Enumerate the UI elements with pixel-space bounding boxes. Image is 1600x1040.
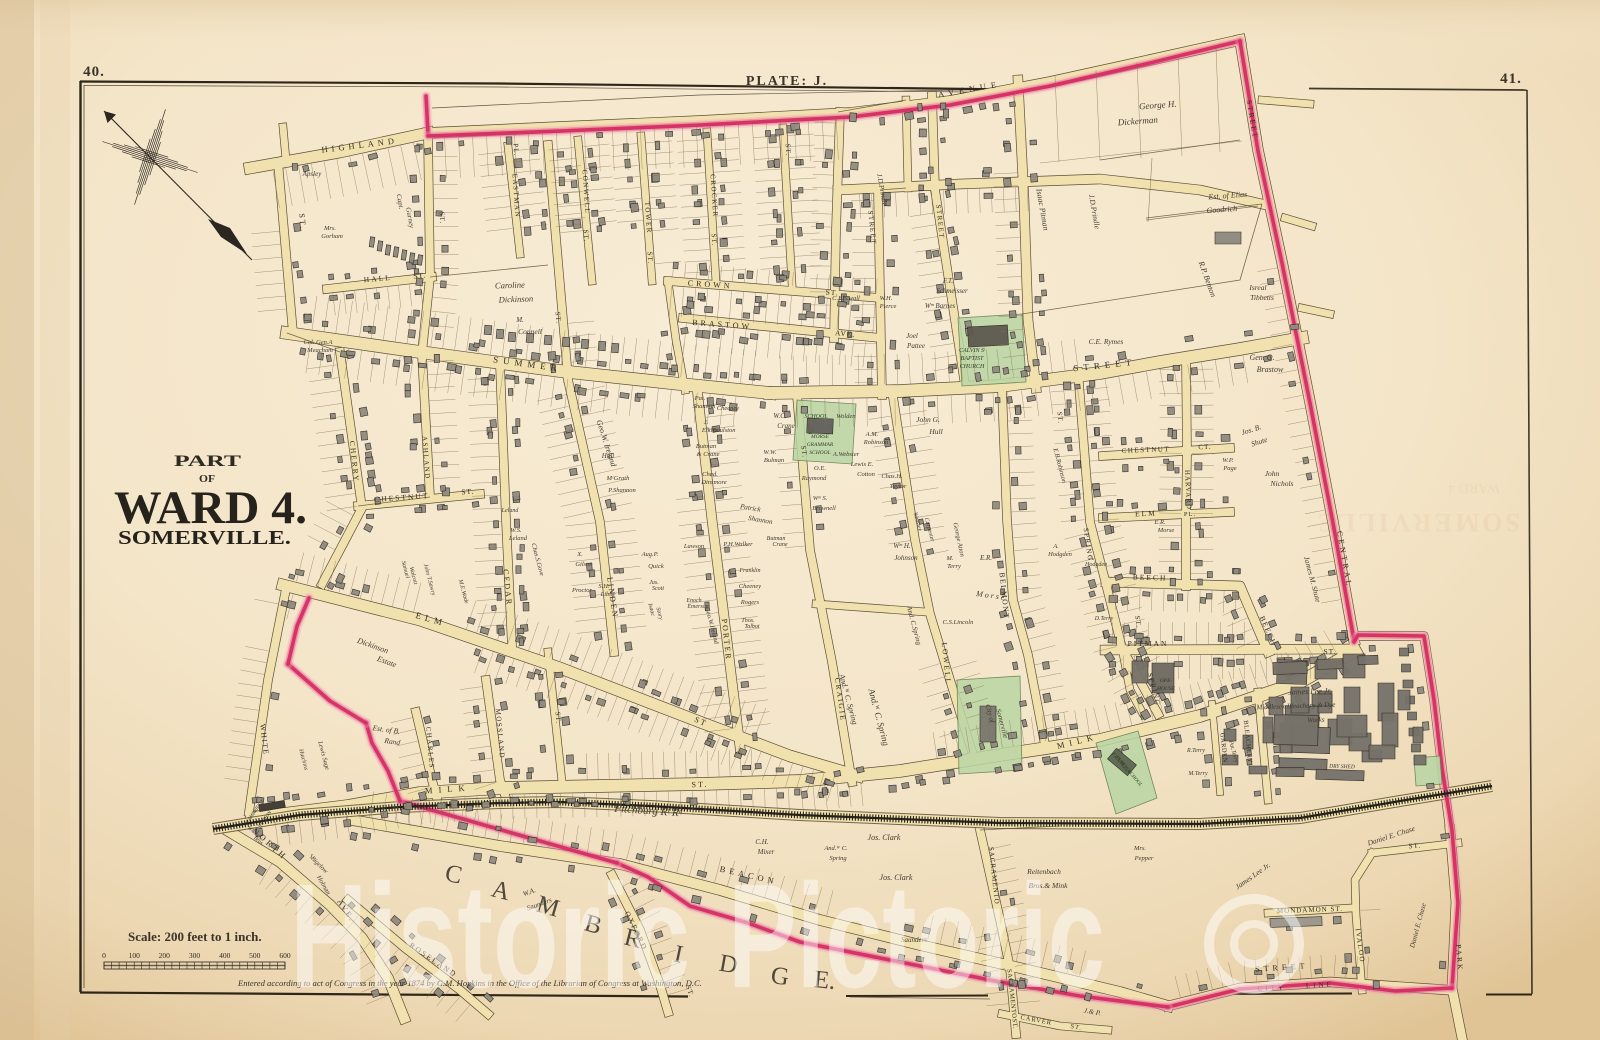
svg-text:PITMAN: PITMAN — [1128, 639, 1169, 648]
svg-text:PART: PART — [174, 453, 242, 470]
svg-text:41.: 41. — [1500, 71, 1522, 87]
svg-text:SCHOOL: SCHOOL — [804, 414, 828, 420]
svg-text:Pepper: Pepper — [1134, 855, 1154, 862]
svg-text:Lawson: Lawson — [683, 543, 704, 550]
svg-text:CHESTNUT: CHESTNUT — [1122, 445, 1171, 455]
svg-text:Raymond: Raymond — [801, 475, 827, 482]
svg-text:Wᵐ H.: Wᵐ H. — [893, 542, 911, 550]
svg-text:Robinson: Robinson — [863, 439, 889, 446]
svg-text:O.E.: O.E. — [814, 465, 826, 472]
svg-text:CALVIN Sᵗ: CALVIN Sᵗ — [959, 348, 986, 354]
svg-text:A.: A. — [1052, 543, 1059, 550]
svg-text:CT.: CT. — [1198, 443, 1211, 451]
svg-text:And.ᵂ C.: And.ᵂ C. — [823, 845, 848, 852]
svg-text:James Lee Jr.: James Lee Jr. — [1288, 686, 1332, 697]
svg-text:ST.: ST. — [413, 270, 427, 280]
svg-text:C.H.: C.H. — [755, 838, 768, 846]
svg-text:Apsley: Apsley — [302, 170, 323, 178]
svg-text:Isreal: Isreal — [1248, 283, 1266, 292]
svg-text:BEECH: BEECH — [1133, 572, 1168, 582]
svg-text:P.H.Walker: P.H.Walker — [722, 541, 753, 548]
svg-text:C.E. Rymes: C.E. Rymes — [1089, 337, 1124, 346]
svg-text:PLATE: J.: PLATE: J. — [746, 74, 828, 89]
svg-text:Pierce: Pierce — [879, 303, 897, 310]
svg-text:100: 100 — [129, 951, 141, 960]
svg-text:E.R.: E.R. — [1153, 519, 1166, 526]
svg-text:W.P.: W.P. — [1222, 457, 1234, 464]
svg-text:F.T.: F.T. — [942, 277, 953, 285]
svg-text:500: 500 — [249, 951, 261, 960]
svg-text:John G.: John G. — [916, 415, 940, 424]
svg-text:Scott: Scott — [652, 586, 664, 592]
svg-text:PARK: PARK — [1454, 944, 1465, 972]
svg-text:W.H.: W.H. — [880, 295, 893, 302]
svg-text:PL.: PL. — [512, 143, 521, 156]
svg-text:MᶜGrath: MᶜGrath — [606, 475, 630, 482]
svg-text:400: 400 — [219, 951, 231, 960]
svg-text:W.W.: W.W. — [764, 449, 777, 456]
svg-text:Talbot: Talbot — [744, 624, 759, 630]
svg-text:ST.: ST. — [1055, 411, 1064, 424]
svg-text:Schmeisser: Schmeisser — [936, 287, 968, 295]
svg-text:C.E.S.wall: C.E.S.wall — [832, 295, 860, 302]
svg-text:ST.: ST. — [582, 229, 591, 242]
svg-text:BAPTIST: BAPTIST — [961, 356, 984, 362]
svg-text:Cheeney: Cheeney — [717, 405, 739, 412]
svg-text:HOUSE: HOUSE — [1156, 686, 1176, 692]
svg-text:Aug.P.: Aug.P. — [641, 551, 659, 558]
svg-text:ST.: ST. — [784, 143, 793, 156]
svg-text:LINE: LINE — [1306, 980, 1334, 989]
svg-text:Meacham: Meacham — [306, 347, 333, 354]
svg-text:SOMERVILLE.: SOMERVILLE. — [118, 528, 291, 549]
svg-text:Brastow: Brastow — [1257, 365, 1284, 374]
svg-text:Historic: Historic — [290, 854, 690, 1019]
svg-text:ST.: ST. — [553, 711, 562, 724]
svg-text:X.: X. — [576, 551, 583, 558]
svg-text:P.Shannon: P.Shannon — [607, 487, 636, 494]
svg-text:Caroline: Caroline — [495, 279, 525, 290]
svg-text:W.S.: W.S. — [510, 527, 522, 534]
svg-text:Crane: Crane — [773, 542, 788, 548]
svg-text:Morse: Morse — [1157, 527, 1175, 534]
svg-text:Leland: Leland — [501, 508, 520, 514]
svg-text:Hall: Hall — [601, 452, 615, 460]
svg-text:M.Terry: M.Terry — [1187, 771, 1208, 777]
svg-text:DRY SHED: DRY SHED — [1328, 764, 1355, 771]
svg-text:Libby: Libby — [600, 591, 616, 598]
svg-text:ST.: ST. — [710, 233, 719, 246]
svg-text:MORSE: MORSE — [810, 434, 830, 440]
svg-text:Rogers: Rogers — [740, 599, 760, 606]
svg-text:Wᵐ S.: Wᵐ S. — [813, 495, 828, 502]
svg-text:Quick: Quick — [648, 563, 664, 570]
svg-text:E.R.: E.R. — [979, 554, 992, 562]
svg-text:ST.: ST. — [553, 311, 562, 324]
svg-text:ST.: ST. — [461, 487, 475, 497]
svg-text:Mrs.: Mrs. — [1133, 845, 1146, 852]
svg-text:Johnson: Johnson — [894, 554, 918, 562]
svg-text:W.C.: W.C. — [773, 412, 787, 420]
svg-text:GRAMMAR: GRAMMAR — [807, 442, 834, 448]
svg-text:Hodgden: Hodgden — [1047, 551, 1072, 558]
svg-text:Tibbetts: Tibbetts — [1250, 293, 1274, 302]
svg-text:ELM: ELM — [1135, 509, 1157, 519]
svg-text:ST.: ST. — [1323, 647, 1336, 656]
svg-text:40.: 40. — [83, 64, 105, 80]
svg-text:Bulman: Bulman — [764, 457, 784, 464]
svg-text:Col. Gen.A: Col. Gen.A — [303, 339, 332, 346]
svg-text:Lewis E.: Lewis E. — [850, 461, 874, 468]
svg-text:D.Terry: D.Terry — [1094, 616, 1114, 622]
svg-text:M.: M. — [515, 316, 524, 324]
svg-text:CHURCH: CHURCH — [960, 364, 985, 370]
svg-text:Gilson: Gilson — [575, 561, 592, 568]
svg-text:R.Terry: R.Terry — [1186, 748, 1205, 754]
svg-text:ST.: ST. — [646, 251, 655, 264]
svg-text:Brownell: Brownell — [812, 505, 836, 512]
svg-text:Scale: 200 feet to 1 inch.: Scale: 200 feet to 1 inch. — [128, 929, 262, 944]
svg-text:Hull: Hull — [928, 427, 942, 436]
svg-text:SOMERVILLE: SOMERVILLE — [1315, 508, 1520, 537]
svg-text:A.Webster: A.Webster — [832, 451, 860, 458]
svg-text:ST.: ST. — [1133, 615, 1143, 628]
svg-text:Cotton: Cotton — [857, 471, 875, 478]
svg-text:Dinsmore: Dinsmore — [700, 479, 727, 486]
svg-text:Hodgden: Hodgden — [1084, 562, 1107, 568]
svg-text:Chad.: Chad. — [702, 471, 718, 478]
svg-text:John: John — [1265, 469, 1280, 478]
svg-text:ST.: ST. — [297, 213, 307, 230]
svg-text:& Crane: & Crane — [697, 451, 720, 458]
svg-text:Chas.H.: Chas.H. — [881, 473, 903, 480]
svg-text:ST.: ST. — [691, 780, 708, 790]
svg-text:ST.: ST. — [438, 211, 447, 224]
svg-text:Taylor: Taylor — [890, 483, 907, 490]
svg-text:Works: Works — [1307, 716, 1325, 725]
svg-text:Dickinson: Dickinson — [497, 293, 533, 304]
svg-text:Nichols: Nichols — [1270, 479, 1294, 488]
svg-text:ST.: ST. — [1010, 1018, 1018, 1029]
svg-text:200: 200 — [159, 951, 171, 960]
svg-text:AVE.: AVE. — [835, 328, 856, 339]
svg-text:Gorham: Gorham — [321, 233, 343, 240]
svg-text:OPE-: OPE- — [1160, 678, 1173, 684]
svg-text:Leland: Leland — [508, 535, 528, 542]
svg-text:0: 0 — [102, 951, 106, 960]
svg-text:WARD 4: WARD 4 — [1448, 480, 1500, 495]
svg-text:Proctor: Proctor — [571, 587, 592, 594]
svg-text:Pattee: Pattee — [906, 342, 925, 350]
svg-text:Shannon: Shannon — [693, 403, 716, 410]
svg-text:Connell: Connell — [518, 327, 542, 336]
svg-text:C.S.Lincoln: C.S.Lincoln — [943, 619, 974, 626]
svg-text:M.: M. — [945, 555, 953, 562]
svg-text:Joel: Joel — [906, 332, 918, 340]
svg-text:Jos. Clark: Jos. Clark — [868, 833, 901, 842]
svg-text:A.M.: A.M. — [865, 431, 879, 438]
svg-text:Gen. O.: Gen. O. — [1249, 353, 1274, 362]
svg-text:J.: J. — [704, 419, 709, 426]
svg-text:Cheeney: Cheeney — [739, 583, 761, 590]
svg-text:Mrs.: Mrs. — [323, 225, 336, 232]
svg-text:WARD 4.: WARD 4. — [114, 482, 307, 534]
svg-text:Wᵐ Barnes: Wᵐ Barnes — [925, 302, 956, 310]
svg-text:Franklin: Franklin — [739, 568, 761, 574]
svg-text:S.H.: S.H. — [598, 583, 610, 590]
svg-text:Roulston: Roulston — [711, 427, 735, 434]
svg-text:Crane: Crane — [777, 422, 795, 430]
svg-text:ST.: ST. — [1408, 842, 1421, 851]
svg-text:Pictoric: Pictoric — [728, 854, 1105, 1019]
svg-text:SCHOOL: SCHOOL — [809, 450, 830, 456]
svg-text:Page: Page — [1222, 465, 1236, 472]
svg-text:Butman: Butman — [696, 443, 716, 450]
svg-text:PL.: PL. — [1184, 511, 1196, 518]
svg-text:300: 300 — [189, 951, 201, 960]
svg-text:Terry: Terry — [947, 563, 961, 570]
svg-text:Wolden: Wolden — [836, 413, 855, 420]
svg-text:Pat.: Pat. — [694, 395, 706, 402]
